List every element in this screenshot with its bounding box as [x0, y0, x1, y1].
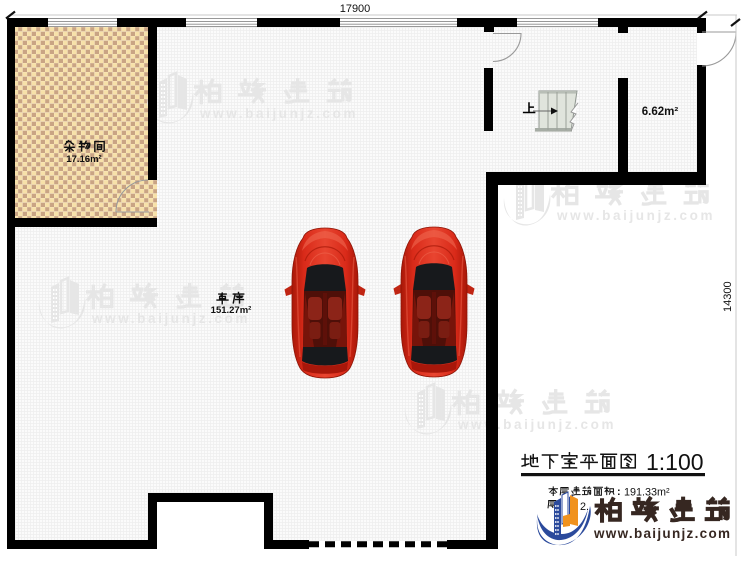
- svg-text:191.33m²: 191.33m²: [624, 487, 670, 499]
- svg-text:2.: 2.: [580, 501, 589, 513]
- svg-text::: :: [617, 486, 621, 498]
- svg-text:www.baijunjz.com: www.baijunjz.com: [593, 526, 731, 541]
- svg-text:www.baijunjz.com: www.baijunjz.com: [457, 417, 616, 432]
- svg-text:14300: 14300: [722, 281, 734, 312]
- svg-text:www.baijunjz.com: www.baijunjz.com: [199, 106, 358, 121]
- svg-text:17900: 17900: [340, 3, 371, 15]
- svg-text:1:100: 1:100: [646, 449, 704, 475]
- svg-text:www.baijunjz.com: www.baijunjz.com: [556, 208, 715, 223]
- svg-text:17.16m²: 17.16m²: [66, 154, 101, 165]
- svg-text:6.62m²: 6.62m²: [642, 106, 679, 118]
- svg-text:151.27m²: 151.27m²: [211, 305, 252, 316]
